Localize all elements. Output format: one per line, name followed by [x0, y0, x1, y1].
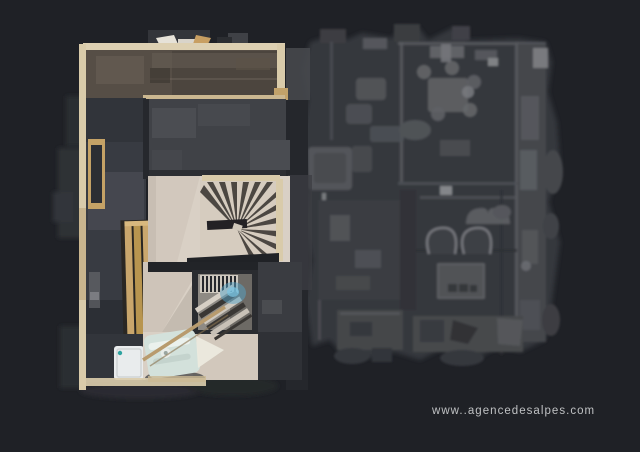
- bed-ghost: [438, 264, 484, 298]
- scan-upper-floor: [53, 30, 302, 399]
- shower-room: [86, 332, 148, 382]
- stair-frame-right: [276, 179, 283, 261]
- ghost-adjacent-rooms: [302, 24, 563, 366]
- watermark: www..agencedesalpes.com: [432, 404, 595, 418]
- shelf-items: [89, 272, 100, 308]
- wall-cabinet: [88, 139, 105, 209]
- blue-light-glow: [220, 282, 246, 304]
- shower-tray: [114, 346, 144, 380]
- spiral-staircase: [187, 175, 283, 270]
- floorplan-viewport[interactable]: www..agencedesalpes.com: [0, 0, 640, 452]
- inner-ghost-room: [148, 99, 290, 176]
- gap-upper-ghost: [286, 48, 310, 100]
- floorplan-svg: [0, 0, 640, 452]
- stair-frame-top: [202, 175, 280, 181]
